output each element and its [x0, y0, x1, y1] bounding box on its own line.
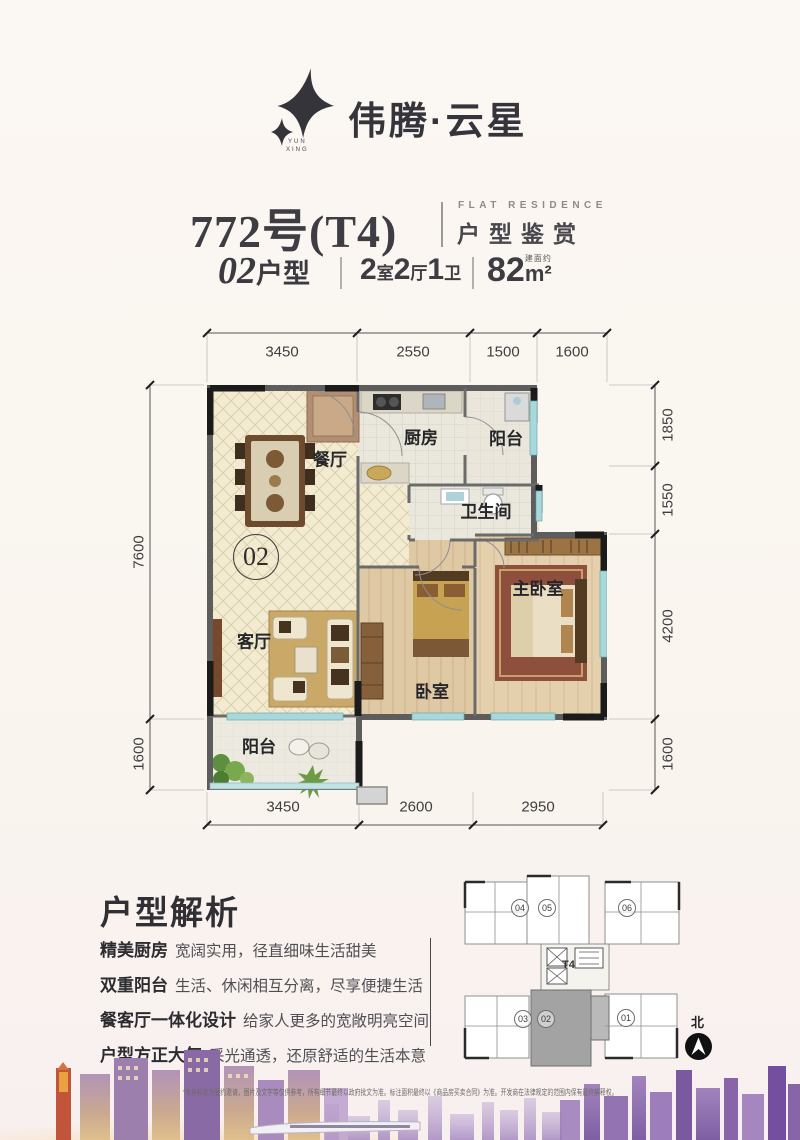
analysis-item-desc: 宽阔实用，径直细味生活甜美 [175, 943, 377, 960]
baths-unit: 卫 [444, 264, 461, 283]
dining-table [235, 435, 315, 527]
room-label-balcony-top: 阳台 [489, 425, 523, 450]
brand-logo: YUN XING [268, 66, 338, 152]
dim-top-2: 2550 [396, 344, 429, 361]
dim-right-4: 1600 [660, 737, 677, 770]
area-unit: m² [525, 264, 552, 284]
series-cn: 户型鉴赏 [457, 215, 585, 249]
dim-top-3: 1500 [486, 344, 519, 361]
spec-divider-1 [340, 257, 342, 289]
logo-sub-top: YUN [288, 139, 307, 145]
title-divider [441, 202, 443, 247]
logo-sub-bottom: XING [286, 147, 309, 153]
dim-left-2: 1600 [131, 737, 148, 770]
analysis-title: 户型解析 [100, 886, 240, 934]
room-label-balcony-bottom: 阳台 [242, 733, 276, 758]
brand-name: 伟腾·云星 [348, 90, 528, 145]
analysis-item-head: 餐客厅一体化设计 [100, 1011, 236, 1030]
rooms-unit: 室 [377, 264, 394, 283]
north-label: 北 [691, 1012, 704, 1031]
keyplan-unit-03: 03 [514, 1010, 532, 1028]
analysis-item: 餐客厅一体化设计给家人更多的宽敞明亮空间 [100, 1006, 410, 1031]
spec-divider-2 [472, 257, 474, 289]
section-divider [430, 938, 431, 1046]
analysis-item-desc: 给家人更多的宽敞明亮空间 [243, 1013, 429, 1030]
dim-top-1: 3450 [265, 344, 298, 361]
unit-badge: 02 [233, 534, 279, 580]
halls-unit: 厅 [410, 264, 427, 283]
analysis-item-head: 精美厨房 [100, 941, 168, 960]
shaft-stub [357, 787, 387, 804]
baths-count: 1 [427, 253, 444, 286]
room-label-bedroom: 卧室 [415, 678, 449, 703]
analysis-item: 精美厨房宽阔实用，径直细味生活甜美 [100, 936, 410, 961]
series-en: FLAT RESIDENCE [458, 200, 607, 211]
room-label-bathroom: 卫生间 [461, 498, 512, 523]
layout-spec: 2室2厅1卫 [360, 253, 461, 287]
type-number: 02 [218, 250, 256, 292]
area-spec: 82建面约m² [487, 251, 552, 290]
keyplan-unit-02: 02 [537, 1010, 555, 1028]
room-label-living: 客厅 [237, 628, 271, 653]
keyplan-unit-06: 06 [618, 899, 636, 917]
analysis-item: 双重阳台生活、休闲相互分离，尽享便捷生活 [100, 971, 410, 996]
room-label-kitchen: 厨房 [404, 424, 438, 449]
room-label-master: 主卧室 [513, 575, 564, 600]
analysis-item-head: 双重阳台 [100, 976, 168, 995]
water-heater [505, 393, 529, 421]
dim-top-4: 1600 [555, 344, 588, 361]
keyplan-unit-01: 01 [617, 1009, 635, 1027]
analysis-item-desc: 生活、休闲相互分离，尽享便捷生活 [175, 978, 423, 995]
dim-right-1: 1850 [660, 408, 677, 441]
keyplan-unit-05: 05 [538, 899, 556, 917]
area-number: 82 [487, 251, 525, 289]
dim-right-3: 4200 [660, 609, 677, 642]
dim-left-1: 7600 [131, 535, 148, 568]
keyplan-unit-04: 04 [511, 899, 529, 917]
halls-count: 2 [394, 253, 411, 286]
dim-right-2: 1550 [660, 483, 677, 516]
type-suffix: 户型 [256, 259, 310, 289]
room-label-dining: 餐厅 [313, 446, 347, 471]
rooms-count: 2 [360, 253, 377, 286]
tower-label: T4 [562, 959, 575, 971]
type-label: 02户型 [218, 249, 310, 293]
disclaimer-text: *本资料仅为要约邀请，图片及文字等仅供参考，所有细节最终以政府批文为准。标注面积… [183, 1087, 617, 1098]
